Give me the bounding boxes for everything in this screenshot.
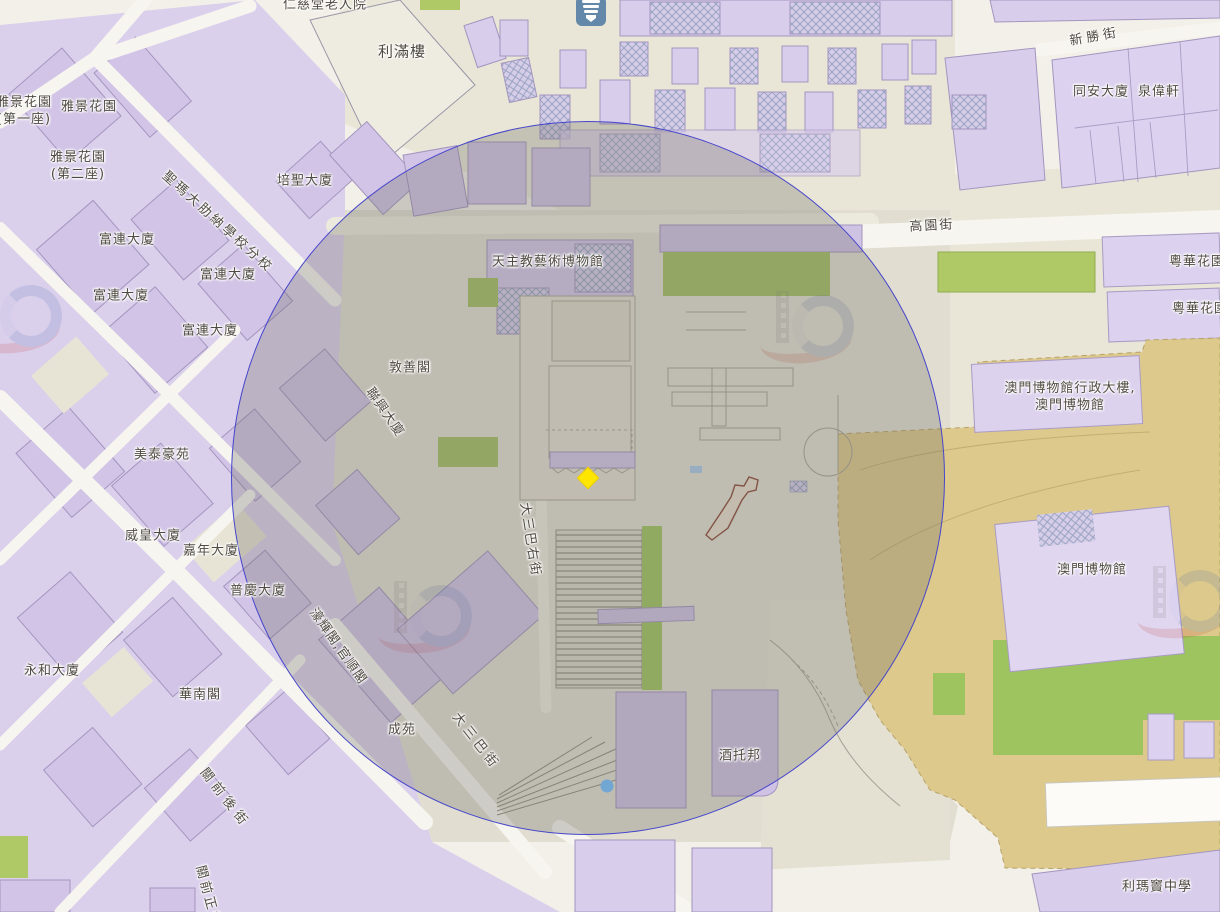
temple-glyph [581, 0, 601, 22]
basemap-tiles [0, 0, 1220, 912]
map-canvas[interactable]: 仁慈堂老人院利滿樓新勝街雅景花園 (第一座)雅景花園雅景花園 (第二座)同安大廈… [0, 0, 1220, 912]
temple-poi-icon[interactable] [576, 0, 606, 26]
poi-dot-marker[interactable] [601, 780, 614, 793]
